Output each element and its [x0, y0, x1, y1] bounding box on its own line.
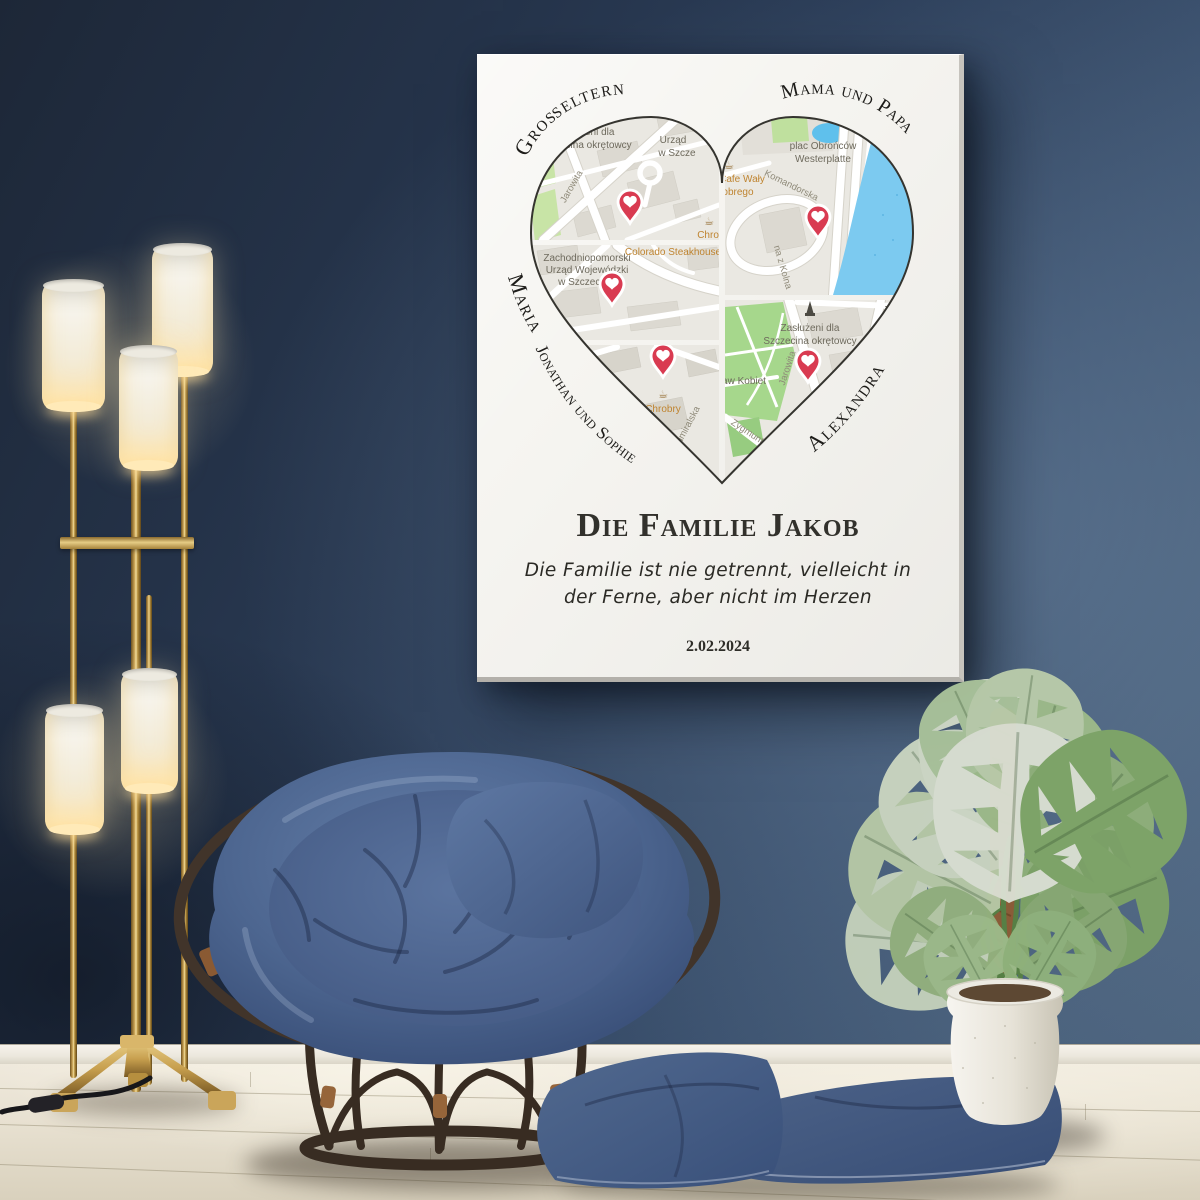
lamp-crossbar	[60, 537, 194, 549]
map-label: Westerplatte	[795, 154, 851, 165]
map-panel-maria: Zachodniopomorski Urząd Wojewódzki w Szc…	[528, 245, 722, 340]
cafe-icon: ☕	[704, 215, 714, 228]
map-label: Praw Kobiet	[712, 376, 766, 387]
lamp-shade	[119, 349, 178, 468]
heart-map-collage: Zasłużeni dla Szczecina okrętowcy Urząd …	[477, 55, 959, 525]
monstera-plant	[805, 648, 1200, 1168]
map-label: Szczecina okrętowcy	[763, 336, 856, 347]
pot-soil	[959, 984, 1051, 1002]
map-panel-grosseltern: Zasłużeni dla Szczecina okrętowcy Urząd …	[528, 113, 733, 242]
map-label: Zasłużeni dla	[781, 323, 840, 334]
poi-label: Chrobry	[645, 404, 681, 415]
lamp-cable	[0, 1060, 170, 1120]
cable-switch	[27, 1093, 65, 1113]
map-label: Zachodni	[884, 305, 925, 316]
poster-title: Die Familie Jakob	[477, 507, 959, 545]
lamp-shade	[42, 283, 105, 409]
map-label: Zasłużeni dla	[556, 127, 615, 138]
poster-subtitle-line2: der Ferne, aber nicht im Herzen	[477, 587, 959, 608]
poster-subtitle-line1: Die Familie ist nie getrennt, vielleicht…	[477, 560, 959, 581]
poi-label: Cafe Wały	[719, 174, 765, 185]
map-pond	[645, 449, 664, 467]
chair-pillow	[446, 782, 643, 938]
map-label: Urząd	[660, 135, 687, 146]
map-park	[771, 117, 809, 143]
map-label: Urząd	[894, 318, 921, 329]
poi-label: obrego	[722, 187, 754, 198]
cafe-icon: ☕	[658, 388, 668, 401]
lamp-shade	[45, 708, 104, 832]
poi-label: Colorado Steakhouse	[625, 247, 722, 258]
plant-leaves	[824, 661, 1200, 1029]
map-label: w Szcze	[657, 148, 696, 159]
living-room-scene: Zasłużeni dla Szczecina okrętowcy Urząd …	[0, 0, 1200, 1200]
canvas-poster: Zasłużeni dla Szczecina okrętowcy Urząd …	[477, 54, 964, 682]
map-label: Zachodniopomorski	[543, 253, 630, 264]
map-label: Szczecina okrętowcy	[538, 140, 631, 151]
map-label: plac Obrońców	[790, 141, 857, 152]
map-label: w	[904, 331, 913, 342]
floor-pillow-left	[537, 1052, 783, 1188]
map-panel-mama-papa: plac Obrońców Westerplatte ☕ Cafe Wały o…	[719, 114, 916, 295]
plant-pot	[947, 978, 1063, 1125]
